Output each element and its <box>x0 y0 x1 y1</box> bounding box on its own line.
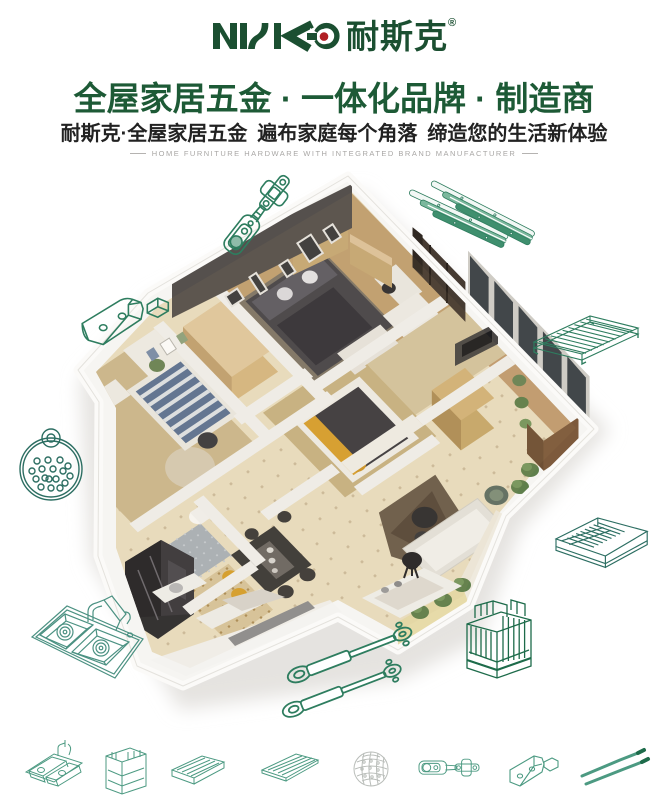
svg-text:®: ® <box>448 17 456 29</box>
svg-text:耐斯克: 耐斯克 <box>346 18 448 55</box>
